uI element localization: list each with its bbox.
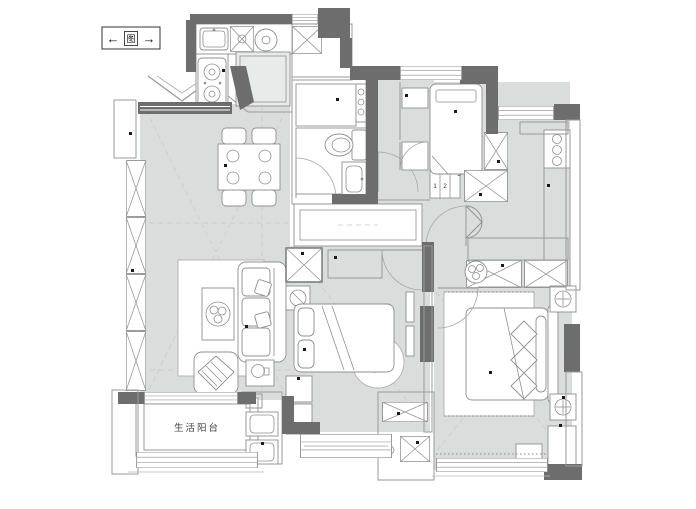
window-band (136, 452, 258, 468)
throw-pillow (254, 311, 271, 328)
wall (118, 392, 144, 404)
wall-cabinet-xbox (126, 332, 146, 391)
bed-pillow (298, 308, 314, 336)
knob-icon (219, 82, 222, 85)
ac-unit-xbox (400, 436, 429, 461)
shelf (402, 88, 428, 108)
nightstand (402, 142, 428, 170)
water-heater-icon (255, 29, 277, 51)
wall (186, 20, 196, 72)
bed-pillow (298, 340, 314, 368)
wall-cabinet-xbox (126, 218, 146, 274)
window-band (292, 14, 318, 24)
hatch-column (114, 100, 136, 158)
cooktop (198, 58, 226, 106)
wall (138, 102, 232, 114)
wall-cabinet-xbox (126, 275, 146, 331)
side-table (246, 360, 274, 386)
ac-unit-xbox (382, 402, 427, 422)
washing-machine (246, 412, 278, 436)
dining-chair (222, 128, 246, 144)
sliding-door-panel (406, 326, 414, 356)
step-number-1: 1 (433, 183, 437, 190)
cabinet-xbox (230, 26, 254, 51)
service-balcony: 生活阳台 (136, 398, 258, 456)
bath-niche-shelf (356, 84, 366, 122)
sliding-door-panel (406, 292, 414, 322)
coffee-table (202, 288, 234, 340)
body-pillow (536, 316, 546, 392)
floor-plan-canvas: ← 图 → (0, 0, 696, 509)
wall (564, 324, 580, 372)
wall (460, 66, 498, 84)
faucet-icon (213, 29, 216, 32)
wardrobe-xbox (464, 170, 507, 201)
shoe-cabinet-xbox (292, 26, 321, 53)
closet-cabinet-xbox (524, 260, 567, 287)
wall (340, 38, 352, 68)
dining-chair (252, 128, 276, 144)
bathroom (296, 84, 366, 198)
wall (282, 422, 320, 434)
floor-plan-page: ← 图 → (0, 0, 696, 509)
dining-chair (222, 190, 246, 206)
window-band (436, 458, 548, 472)
faucet-icon (361, 178, 364, 181)
single-bed (430, 84, 482, 174)
window-band (498, 106, 554, 120)
compass: ← 图 → (102, 27, 160, 49)
shower-area (296, 84, 356, 126)
wall (554, 104, 580, 120)
balcony-door-window (144, 392, 238, 404)
sofa-cushion (242, 328, 270, 356)
dresser (548, 426, 576, 466)
wall-cabinet-xbox (126, 161, 146, 217)
knob-icon (204, 82, 207, 85)
dining-chair (252, 190, 276, 206)
east-arrow-icon: → (143, 31, 156, 46)
wardrobe-xbox (484, 132, 508, 169)
wall (350, 66, 402, 80)
bathroom-door-swing (296, 158, 336, 198)
dining-table (218, 144, 280, 190)
wall (366, 80, 378, 204)
step-number-2: 2 (443, 183, 447, 190)
west-arrow-icon: ← (107, 31, 120, 46)
entry (292, 26, 321, 53)
compass-symbol: 图 (126, 34, 135, 44)
wall (238, 392, 256, 404)
balcony-label: 生活阳台 (174, 422, 220, 434)
wall (332, 194, 378, 204)
wall (318, 8, 350, 38)
window-band (400, 66, 462, 80)
headboard (548, 306, 558, 402)
wall (486, 84, 498, 134)
toilet-tank (352, 130, 366, 160)
toilet-bowl (325, 134, 353, 156)
